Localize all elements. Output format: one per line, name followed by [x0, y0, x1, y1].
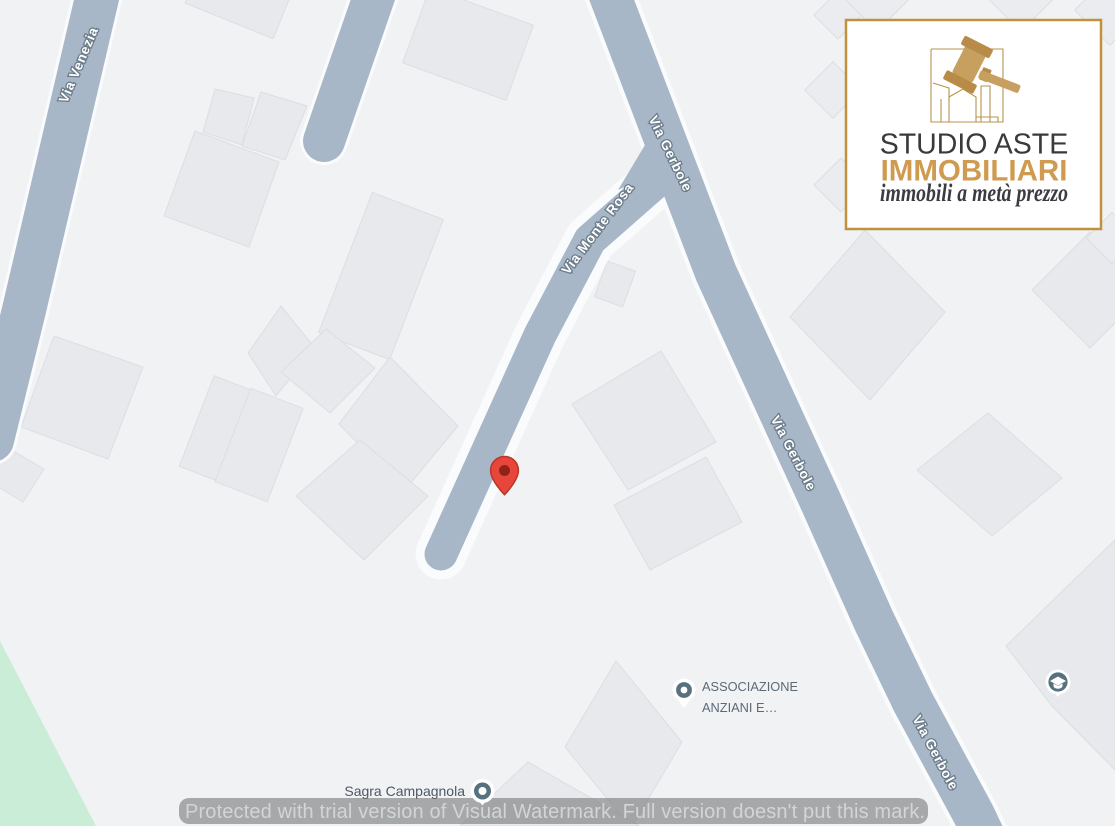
- svg-text:immobili a metà prezzo: immobili a metà prezzo: [880, 180, 1068, 207]
- svg-text:ANZIANI E…: ANZIANI E…: [702, 700, 777, 715]
- svg-text:Sagra Campagnola: Sagra Campagnola: [344, 783, 465, 799]
- svg-text:ASSOCIAZIONE: ASSOCIAZIONE: [702, 679, 798, 694]
- svg-text:Protected with trial version o: Protected with trial version of Visual W…: [185, 801, 925, 823]
